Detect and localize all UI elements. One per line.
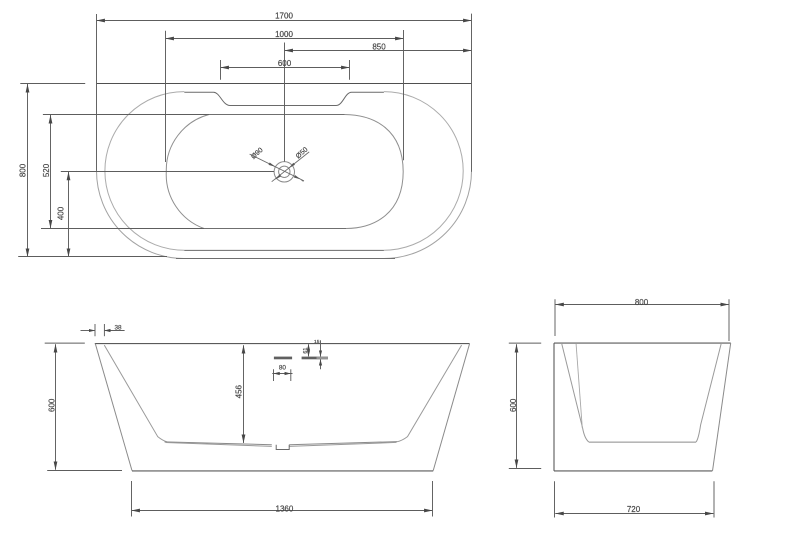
svg-text:800: 800 — [635, 298, 649, 307]
svg-text:400: 400 — [56, 206, 65, 220]
svg-text:Ø90: Ø90 — [250, 147, 265, 161]
svg-text:600: 600 — [278, 59, 292, 68]
svg-text:600: 600 — [509, 398, 518, 412]
svg-text:1000: 1000 — [275, 30, 293, 39]
svg-text:520: 520 — [42, 163, 51, 177]
svg-text:800: 800 — [19, 163, 28, 177]
svg-text:456: 456 — [235, 384, 244, 398]
svg-text:600: 600 — [47, 398, 56, 412]
svg-text:61: 61 — [303, 348, 309, 354]
svg-text:1700: 1700 — [275, 11, 293, 20]
svg-text:Ø50: Ø50 — [295, 146, 310, 160]
svg-text:15: 15 — [314, 339, 320, 345]
svg-text:850: 850 — [372, 43, 386, 52]
svg-text:38: 38 — [114, 324, 122, 331]
svg-text:1360: 1360 — [276, 504, 294, 513]
svg-text:80: 80 — [279, 365, 287, 372]
svg-text:720: 720 — [627, 505, 641, 514]
